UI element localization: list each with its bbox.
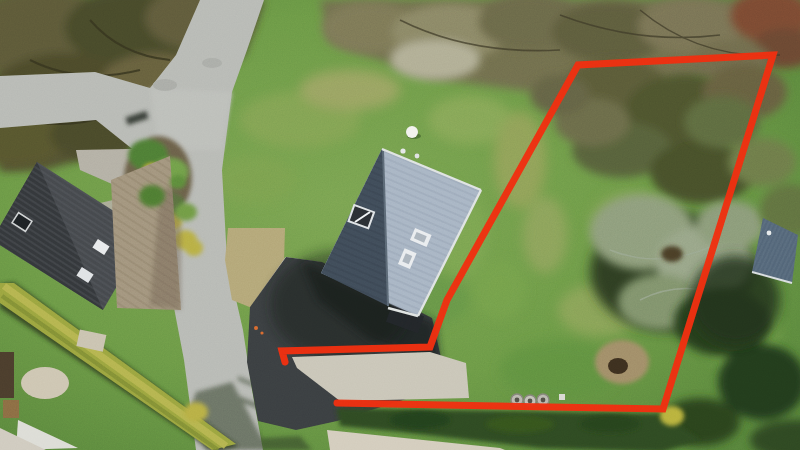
- aerial-photo: [0, 0, 800, 450]
- photo-grain-overlay: [0, 0, 800, 450]
